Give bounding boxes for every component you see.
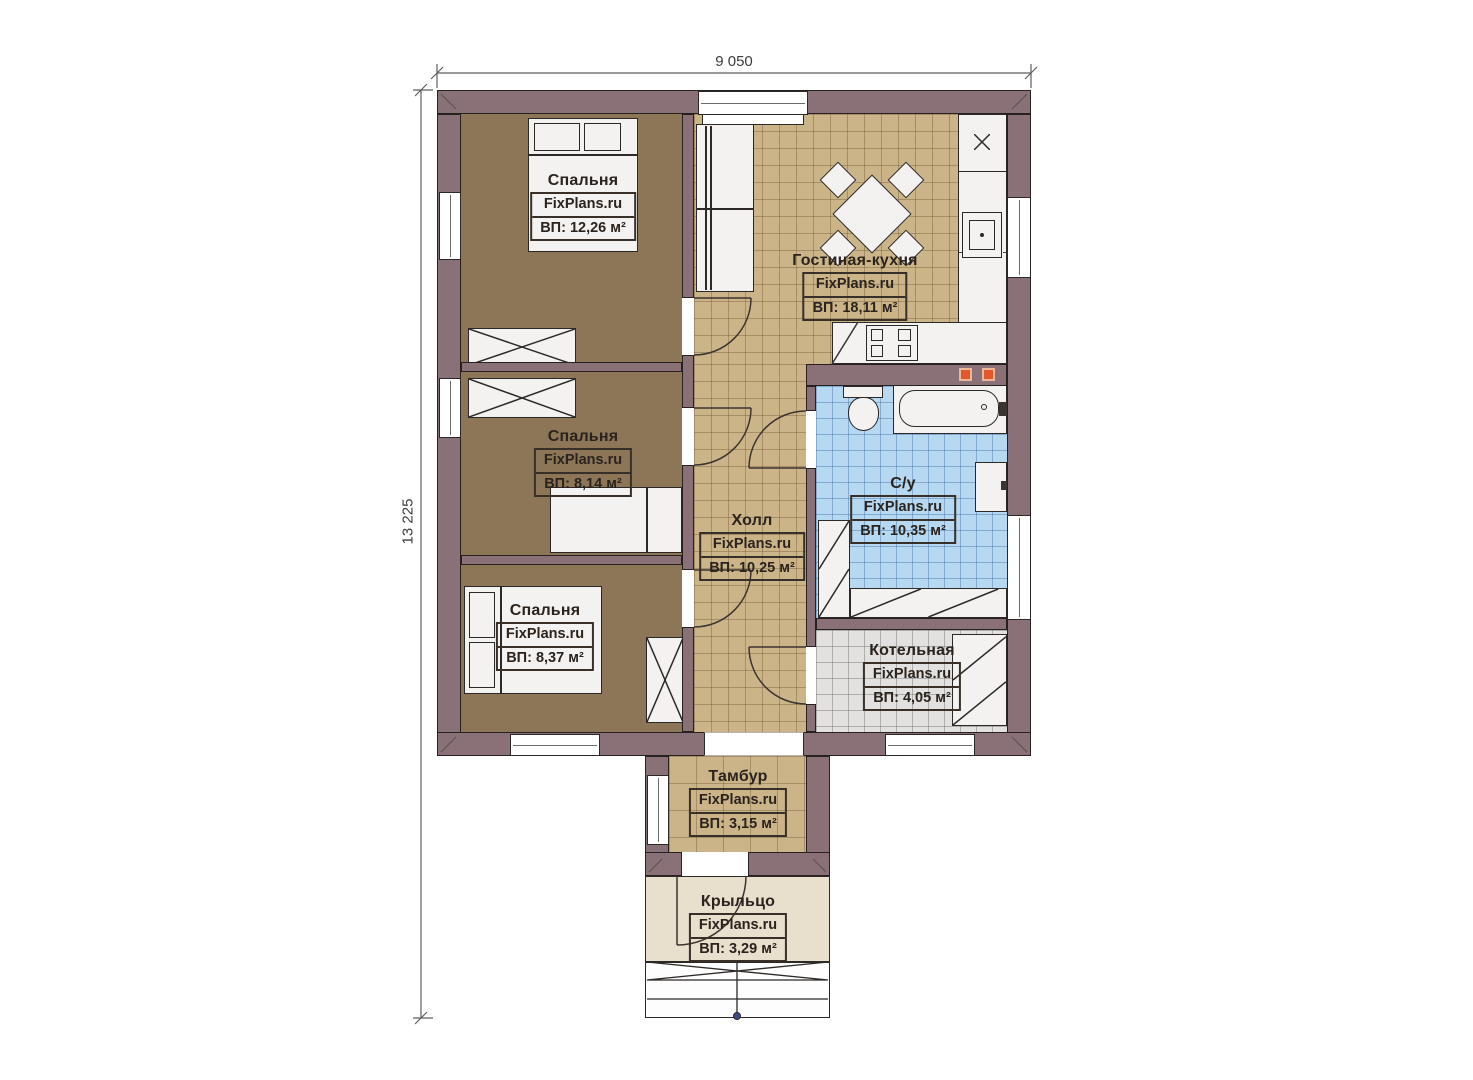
window (885, 734, 975, 756)
wall-partition (461, 555, 682, 565)
window-sill (702, 114, 804, 125)
window (1007, 197, 1031, 278)
window (698, 91, 808, 115)
utility-riser-marker (959, 368, 972, 381)
room-label-bedroom-3: Спальня FixPlans.ru ВП: 8,37 м² (496, 602, 594, 671)
room-info-box: FixPlans.ru ВП: 8,14 м² (534, 448, 632, 497)
room-area: ВП: 12,26 м² (532, 216, 634, 240)
window (647, 775, 669, 845)
pillow (469, 642, 495, 688)
room-name: Спальня (530, 172, 636, 190)
burner (898, 345, 911, 357)
room-info-box: FixPlans.ru ВП: 12,26 м² (530, 192, 636, 241)
room-name: Тамбур (689, 768, 787, 786)
window (439, 192, 461, 260)
bathroom-cabinet (850, 588, 1007, 618)
room-name: Спальня (496, 602, 594, 620)
kitchen-counter-bottom (832, 322, 1007, 364)
pillow (584, 123, 621, 151)
room-name: Спальня (534, 428, 632, 446)
bathroom-cabinet (818, 520, 850, 618)
watermark-text: FixPlans.ru (865, 664, 959, 686)
room-area: ВП: 10,25 м² (701, 556, 803, 580)
watermark-text: FixPlans.ru (852, 497, 954, 519)
wardrobe-icon (468, 328, 576, 366)
wall-partition (806, 364, 1007, 386)
pillow (469, 592, 495, 638)
watermark-text: FixPlans.ru (532, 194, 634, 216)
utility-riser-marker (982, 368, 995, 381)
room-label-bedroom-2: Спальня FixPlans.ru ВП: 8,14 м² (534, 428, 632, 497)
room-area: ВП: 8,37 м² (498, 646, 592, 670)
room-label-boiler-room: Котельная FixPlans.ru ВП: 4,05 м² (863, 642, 961, 711)
burner (871, 345, 883, 357)
bathtub-drain (981, 404, 987, 410)
sink-drain (980, 233, 984, 237)
room-label-porch: Крыльцо FixPlans.ru ВП: 3,29 м² (689, 893, 787, 962)
room-name: Гостиная-кухня (792, 252, 917, 270)
wall-partition (806, 704, 816, 732)
room-name: Котельная (863, 642, 961, 660)
wall-partition (682, 114, 694, 298)
fridge-x-icon (974, 134, 990, 150)
burner (898, 329, 911, 341)
window (1007, 515, 1031, 620)
watermark-text: FixPlans.ru (805, 274, 906, 296)
room-label-bathroom: С/у FixPlans.ru ВП: 10,35 м² (850, 475, 956, 544)
room-info-box: FixPlans.ru ВП: 3,29 м² (689, 913, 787, 962)
bed-pillow-line (646, 488, 648, 552)
room-info-box: FixPlans.ru ВП: 18,11 м² (803, 272, 908, 321)
wall-partition (682, 465, 694, 570)
room-area: ВП: 4,05 м² (865, 686, 959, 710)
watermark-text: FixPlans.ru (536, 450, 630, 472)
room-area: ВП: 18,11 м² (805, 296, 906, 320)
watermark-text: FixPlans.ru (498, 624, 592, 646)
room-info-box: FixPlans.ru ВП: 10,35 м² (850, 495, 956, 544)
pillow (534, 123, 580, 151)
wall-partition (806, 386, 816, 411)
dimension-height-label: 13 225 (400, 487, 417, 557)
wall-vestibule-bottom (748, 852, 830, 876)
room-info-box: FixPlans.ru ВП: 8,37 м² (496, 622, 594, 671)
room-name: Крыльцо (689, 893, 787, 911)
bed-blanket-line (529, 154, 637, 156)
dimension-width-label: 9 050 (699, 53, 769, 70)
room-label-vestibule: Тамбур FixPlans.ru ВП: 3,15 м² (689, 768, 787, 837)
toilet-bowl (848, 397, 879, 431)
wall-partition (806, 468, 816, 647)
room-area: ВП: 3,15 м² (691, 812, 785, 836)
room-label-bedroom-1: Спальня FixPlans.ru ВП: 12,26 м² (530, 172, 636, 241)
wall-partition (816, 618, 1007, 630)
room-info-box: FixPlans.ru ВП: 3,15 м² (689, 788, 787, 837)
room-name: С/у (850, 475, 956, 493)
sofa-seat-line (697, 208, 753, 210)
entry-door-opening (704, 732, 804, 756)
room-info-box: FixPlans.ru ВП: 10,25 м² (699, 532, 805, 581)
room-area: ВП: 3,29 м² (691, 937, 785, 961)
watermark-text: FixPlans.ru (691, 915, 785, 937)
room-info-box: FixPlans.ru ВП: 4,05 м² (863, 662, 961, 711)
room-area: ВП: 8,14 м² (536, 472, 630, 496)
window (439, 378, 461, 438)
watermark-text: FixPlans.ru (701, 534, 803, 556)
wall-vestibule-bottom (645, 852, 682, 876)
room-area: ВП: 10,35 м² (852, 519, 954, 543)
wall-partition (682, 627, 694, 732)
porch-steps (645, 962, 830, 1018)
floor-plan-page: { "dimensions": { "width_label": "9 050"… (0, 0, 1473, 1080)
wardrobe-icon (646, 637, 684, 723)
wardrobe-icon (468, 378, 576, 418)
wall-partition (461, 362, 682, 372)
watermark-text: FixPlans.ru (691, 790, 785, 812)
burner (871, 329, 883, 341)
room-label-hall: Холл FixPlans.ru ВП: 10,25 м² (699, 512, 805, 581)
room-label-living-kitchen: Гостиная-кухня FixPlans.ru ВП: 18,11 м² (792, 252, 917, 321)
window (510, 734, 600, 756)
wall-partition (682, 355, 694, 408)
room-name: Холл (699, 512, 805, 530)
